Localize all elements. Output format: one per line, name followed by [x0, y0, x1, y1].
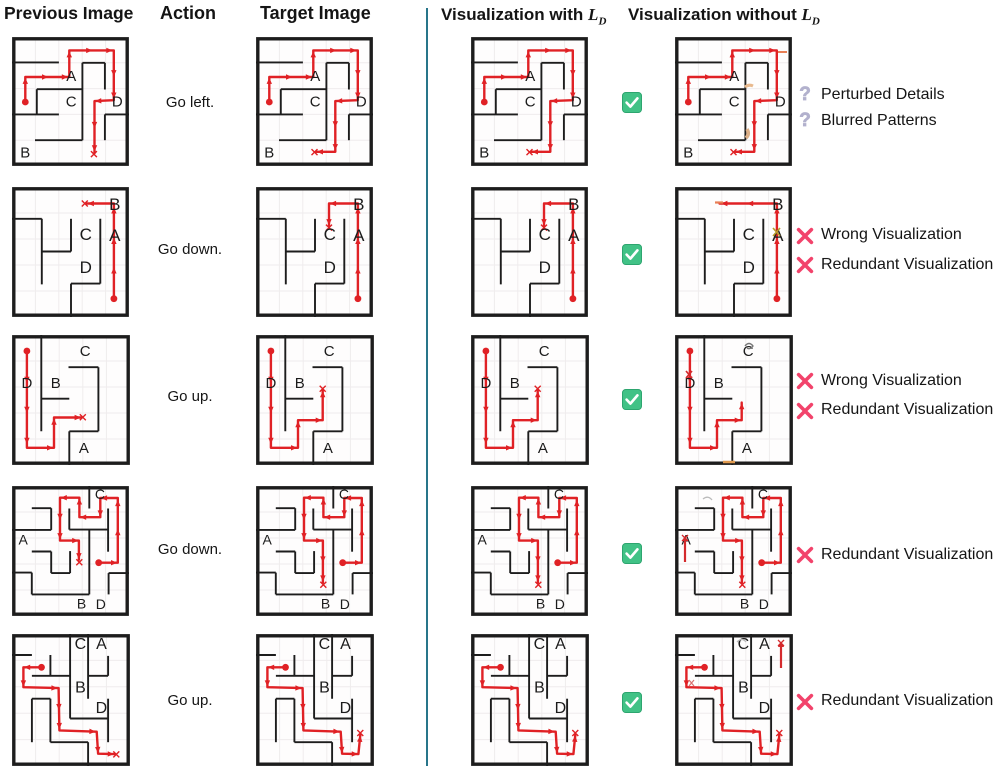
svg-text:C: C: [95, 486, 105, 502]
svg-text:D: D: [555, 596, 565, 612]
svg-text:B: B: [75, 680, 86, 697]
svg-text:D: D: [759, 700, 771, 717]
svg-text:C: C: [743, 225, 755, 244]
svg-text:C: C: [534, 636, 546, 653]
svg-text:A: A: [109, 226, 121, 245]
svg-text:C: C: [324, 343, 335, 360]
svg-text:D: D: [21, 375, 32, 392]
svg-text:B: B: [109, 195, 120, 214]
svg-text:B: B: [714, 375, 724, 392]
svg-text:B: B: [568, 195, 579, 214]
svg-text:D: D: [775, 94, 786, 111]
svg-text:D: D: [743, 258, 755, 277]
svg-text:A: A: [478, 531, 488, 547]
svg-text:D: D: [571, 94, 582, 111]
svg-text:C: C: [539, 225, 551, 244]
svg-text:D: D: [480, 375, 491, 392]
svg-text:A: A: [353, 226, 365, 245]
svg-text:B: B: [738, 680, 749, 697]
svg-text:A: A: [66, 68, 76, 85]
svg-text:D: D: [759, 596, 769, 612]
svg-text:B: B: [77, 595, 86, 611]
svg-text:B: B: [740, 595, 749, 611]
svg-text:A: A: [729, 68, 739, 85]
svg-text:A: A: [555, 636, 566, 653]
svg-text:D: D: [265, 375, 276, 392]
svg-text:B: B: [772, 195, 783, 214]
svg-text:D: D: [356, 94, 367, 111]
svg-text:A: A: [525, 68, 535, 85]
svg-text:B: B: [295, 375, 305, 392]
svg-text:A: A: [323, 440, 333, 457]
svg-text:D: D: [80, 258, 92, 277]
svg-text:B: B: [321, 595, 330, 611]
svg-text:A: A: [263, 531, 273, 547]
svg-text:D: D: [555, 700, 567, 717]
svg-text:C: C: [525, 94, 536, 111]
svg-text:C: C: [80, 343, 91, 360]
svg-text:D: D: [539, 258, 551, 277]
svg-text:A: A: [340, 636, 351, 653]
svg-text:C: C: [339, 486, 349, 502]
svg-text:A: A: [79, 440, 89, 457]
svg-text:D: D: [96, 700, 108, 717]
svg-text:B: B: [20, 145, 30, 162]
svg-text:C: C: [554, 486, 564, 502]
svg-text:C: C: [539, 343, 550, 360]
svg-text:B: B: [353, 195, 364, 214]
svg-text:B: B: [479, 145, 489, 162]
svg-text:C: C: [729, 94, 740, 111]
svg-text:C: C: [324, 225, 336, 244]
svg-text:C: C: [758, 486, 768, 502]
svg-text:D: D: [112, 94, 123, 111]
svg-text:D: D: [340, 700, 352, 717]
svg-text:D: D: [324, 258, 336, 277]
svg-text:C: C: [80, 225, 92, 244]
svg-text:B: B: [319, 680, 330, 697]
svg-text:A: A: [568, 226, 580, 245]
svg-text:A: A: [742, 440, 752, 457]
svg-text:C: C: [66, 94, 77, 111]
svg-text:C: C: [738, 636, 750, 653]
svg-text:C: C: [310, 94, 321, 111]
svg-text:D: D: [96, 596, 106, 612]
svg-text:B: B: [536, 595, 545, 611]
svg-text:B: B: [534, 680, 545, 697]
svg-text:A: A: [538, 440, 548, 457]
svg-text:D: D: [340, 596, 350, 612]
svg-text:A: A: [310, 68, 320, 85]
svg-text:A: A: [19, 531, 29, 547]
svg-text:B: B: [264, 145, 274, 162]
svg-text:C: C: [319, 636, 331, 653]
svg-text:B: B: [683, 145, 693, 162]
svg-text:B: B: [51, 375, 61, 392]
svg-text:A: A: [759, 636, 770, 653]
svg-text:C: C: [75, 636, 87, 653]
svg-text:B: B: [510, 375, 520, 392]
svg-text:A: A: [96, 636, 107, 653]
